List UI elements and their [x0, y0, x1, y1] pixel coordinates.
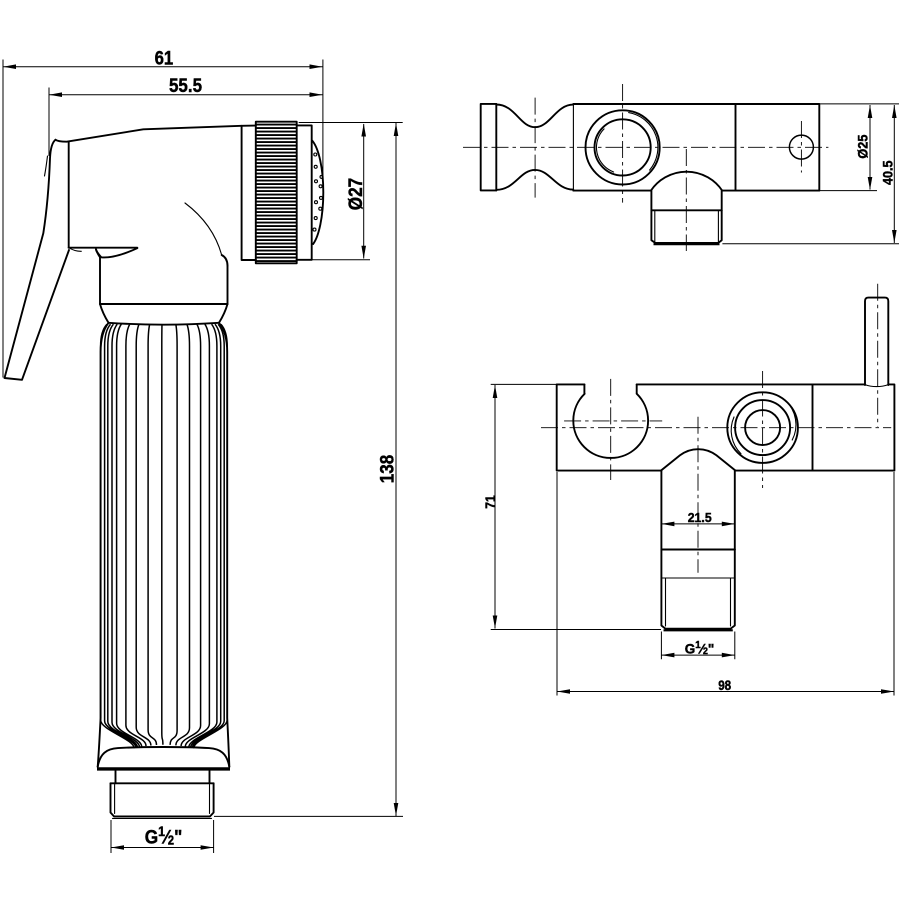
svg-text:98: 98 [718, 678, 731, 693]
svg-text:G1⁄2": G1⁄2" [145, 823, 183, 849]
svg-text:61: 61 [155, 47, 174, 69]
svg-text:71: 71 [483, 495, 498, 509]
svg-text:G1⁄2": G1⁄2" [685, 640, 715, 656]
svg-text:55.5: 55.5 [169, 75, 202, 97]
svg-text:40.5: 40.5 [881, 160, 896, 185]
svg-text:21.5: 21.5 [688, 510, 712, 525]
svg-text:138: 138 [377, 455, 399, 484]
svg-text:Ø25: Ø25 [856, 134, 871, 158]
svg-text:Ø27: Ø27 [345, 178, 367, 211]
